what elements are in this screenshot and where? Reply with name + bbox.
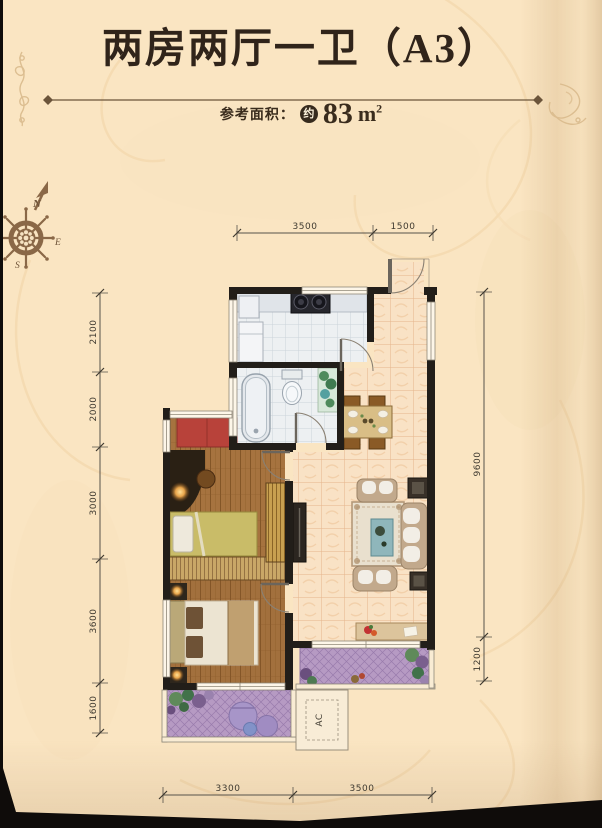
end-table bbox=[408, 478, 428, 498]
compass-south-label: S bbox=[15, 261, 20, 271]
kitchen-top-window bbox=[302, 287, 367, 294]
bathtub bbox=[242, 374, 270, 442]
compass-rose: N E S bbox=[0, 181, 61, 271]
sideboard bbox=[356, 623, 430, 640]
dim-right-1: 9600 bbox=[473, 452, 483, 477]
dim-right-2: 1200 bbox=[473, 647, 483, 672]
dim-top-1: 3500 bbox=[293, 222, 318, 232]
coffee-table bbox=[371, 519, 393, 556]
area-label: 参考面积： bbox=[220, 104, 295, 124]
end-table bbox=[410, 572, 428, 590]
kitchen-side-window bbox=[229, 300, 237, 362]
approx-badge: 约 bbox=[300, 105, 318, 123]
page-title: 两房两厅一卫（A3） bbox=[0, 14, 602, 74]
bedroom2-balcony-door bbox=[197, 683, 285, 690]
bedroom1-top-window bbox=[170, 411, 232, 418]
area-unit: m2 bbox=[358, 101, 382, 127]
living-balcony-door bbox=[312, 641, 420, 648]
kitchen-sink bbox=[239, 296, 259, 318]
dim-left-5: 1600 bbox=[89, 696, 99, 721]
single-bed bbox=[170, 512, 257, 556]
fridge bbox=[239, 322, 263, 362]
bedroom1-side-window bbox=[163, 420, 170, 452]
toilet bbox=[282, 370, 302, 405]
area-exponent: 2 bbox=[376, 102, 382, 116]
bathroom-plant-shelf bbox=[318, 368, 338, 412]
dim-left-2: 2000 bbox=[89, 397, 99, 422]
dim-top-2: 1500 bbox=[391, 222, 416, 232]
area-value: 83 bbox=[323, 101, 353, 127]
compass-east-label: E bbox=[54, 238, 61, 248]
dim-left-3: 3000 bbox=[89, 491, 99, 516]
dim-bottom-1: 3300 bbox=[216, 784, 241, 794]
dim-left-1: 2100 bbox=[89, 320, 99, 345]
bedroom2-side-window bbox=[163, 600, 170, 677]
bathroom-window bbox=[229, 378, 237, 436]
double-bed bbox=[168, 601, 258, 665]
dim-left-4: 3600 bbox=[89, 609, 99, 634]
floor-plan-page: N E S bbox=[0, 0, 602, 828]
ac-label: AC bbox=[315, 713, 325, 726]
dim-bottom-2: 3500 bbox=[350, 784, 375, 794]
area-subtitle: 参考面积： 约 83 m2 bbox=[0, 101, 602, 127]
dining-window bbox=[427, 302, 435, 360]
compass-north-label: N bbox=[32, 198, 42, 210]
ac-platform: AC bbox=[296, 690, 348, 750]
